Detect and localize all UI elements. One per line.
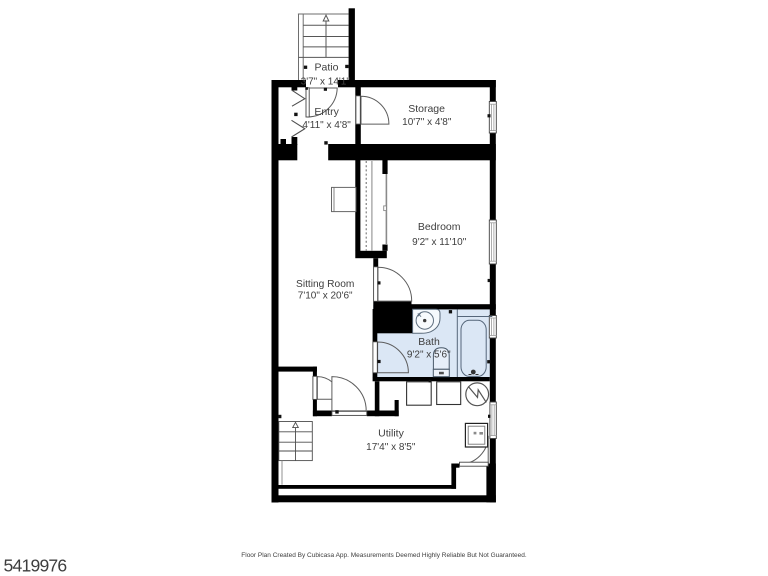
svg-text:Entry: Entry (314, 106, 339, 118)
svg-text:5419976: 5419976 (4, 555, 68, 575)
svg-text:9'2" x 5'6": 9'2" x 5'6" (407, 350, 451, 361)
svg-text:4'11" x 4'8": 4'11" x 4'8" (302, 120, 351, 131)
svg-text:Floor Plan Created By Cubicasa: Floor Plan Created By Cubicasa App. Meas… (241, 552, 527, 559)
svg-text:Bedroom: Bedroom (418, 221, 461, 233)
svg-text:10'7" x 4'8": 10'7" x 4'8" (402, 117, 452, 128)
svg-text:Patio: Patio (315, 62, 339, 74)
svg-text:Utility: Utility (378, 428, 404, 440)
svg-text:Bath: Bath (418, 336, 440, 348)
svg-text:7'10" x 20'6": 7'10" x 20'6" (298, 291, 353, 302)
svg-text:3'7" x 14'1": 3'7" x 14'1" (301, 76, 351, 87)
svg-text:Sitting Room: Sitting Room (296, 279, 354, 290)
svg-text:9'2" x 11'10": 9'2" x 11'10" (412, 237, 467, 248)
svg-text:17'4" x 8'5": 17'4" x 8'5" (366, 442, 416, 453)
svg-text:Storage: Storage (408, 103, 445, 115)
